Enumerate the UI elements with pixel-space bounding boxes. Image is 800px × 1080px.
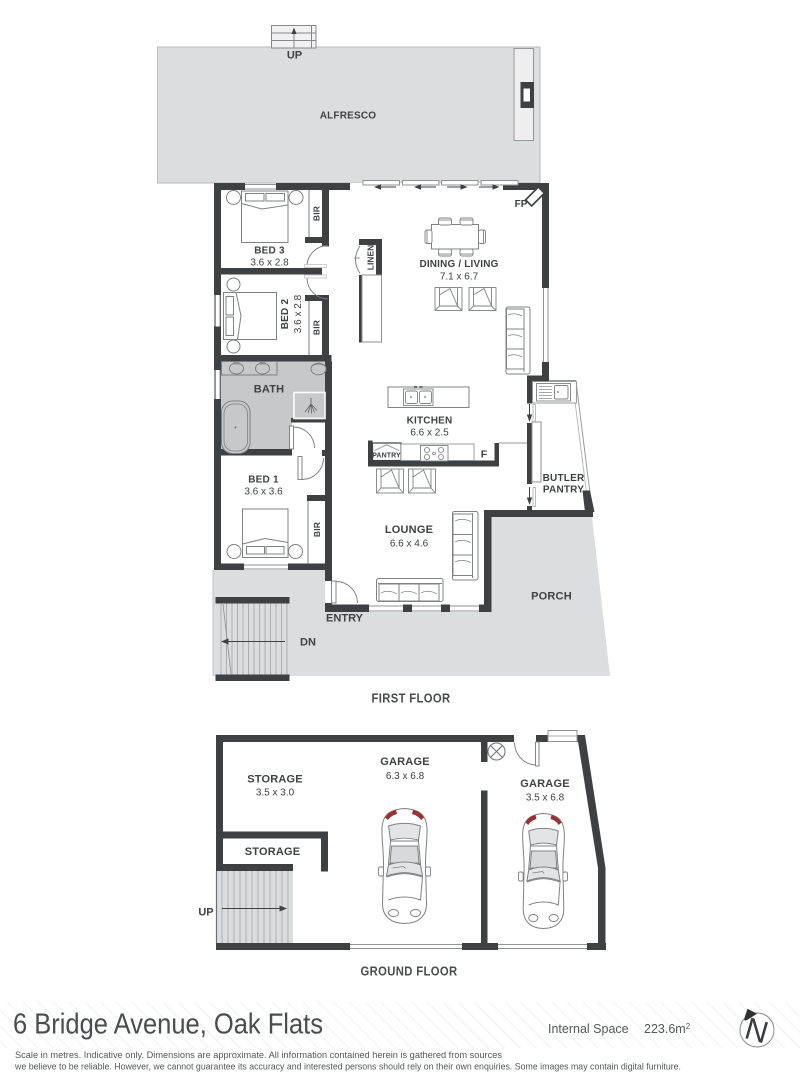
svg-text:7.1 x 6.7: 7.1 x 6.7 (440, 272, 479, 283)
svg-text:FP: FP (515, 199, 528, 210)
svg-text:BED 2: BED 2 (280, 299, 291, 330)
svg-text:3.6 x 2.8: 3.6 x 2.8 (250, 258, 289, 269)
svg-text:Scale in metres. Indicative on: Scale in metres. Indicative only. Dimens… (15, 1050, 503, 1060)
svg-text:DN: DN (300, 637, 316, 649)
svg-text:FIRST FLOOR: FIRST FLOOR (372, 692, 451, 706)
svg-text:BIR: BIR (312, 320, 322, 335)
svg-text:BED 3: BED 3 (254, 246, 285, 257)
svg-text:3.5 x 3.0: 3.5 x 3.0 (256, 788, 295, 799)
svg-text:6.3 x 6.8: 6.3 x 6.8 (386, 771, 425, 782)
svg-text:6.6 x 4.6: 6.6 x 4.6 (390, 539, 429, 550)
svg-text:STORAGE: STORAGE (245, 846, 301, 858)
svg-text:F: F (481, 449, 488, 461)
svg-text:ENTRY: ENTRY (326, 613, 364, 625)
svg-text:UP: UP (287, 50, 302, 62)
svg-text:GROUND FLOOR: GROUND FLOOR (361, 965, 458, 979)
svg-text:PANTRY: PANTRY (372, 453, 401, 460)
svg-text:BUTLER: BUTLER (543, 473, 585, 484)
svg-text:GARAGE: GARAGE (380, 756, 429, 768)
svg-text:KITCHEN: KITCHEN (407, 416, 453, 427)
svg-text:PANTRY: PANTRY (543, 485, 584, 496)
svg-text:223.6m2: 223.6m2 (644, 1022, 691, 1036)
svg-text:Internal Space: Internal Space (548, 1022, 629, 1036)
svg-text:BIR: BIR (312, 206, 322, 221)
svg-text:BATH: BATH (254, 384, 285, 396)
svg-text:LINEN: LINEN (366, 245, 376, 271)
svg-text:GARAGE: GARAGE (520, 778, 569, 790)
svg-text:we believe to be reliable. How: we believe to be reliable. However, we c… (14, 1062, 681, 1072)
svg-text:BED 1: BED 1 (248, 475, 279, 486)
svg-text:ALFRESCO: ALFRESCO (320, 111, 377, 122)
svg-text:LOUNGE: LOUNGE (385, 524, 433, 536)
svg-text:3.6 x 3.6: 3.6 x 3.6 (244, 487, 283, 498)
svg-text:STORAGE: STORAGE (247, 774, 303, 786)
svg-text:3.5 x 6.8: 3.5 x 6.8 (526, 793, 565, 804)
svg-text:3.6 x 2.8: 3.6 x 2.8 (293, 294, 304, 333)
svg-text:UP: UP (198, 907, 213, 919)
svg-text:6.6 x 2.5: 6.6 x 2.5 (410, 428, 449, 439)
svg-text:DINING / LIVING: DINING / LIVING (420, 259, 499, 270)
svg-text:6 Bridge Avenue, Oak Flats: 6 Bridge Avenue, Oak Flats (13, 1009, 323, 1041)
svg-text:PORCH: PORCH (531, 591, 572, 603)
svg-text:BIR: BIR (312, 522, 322, 537)
